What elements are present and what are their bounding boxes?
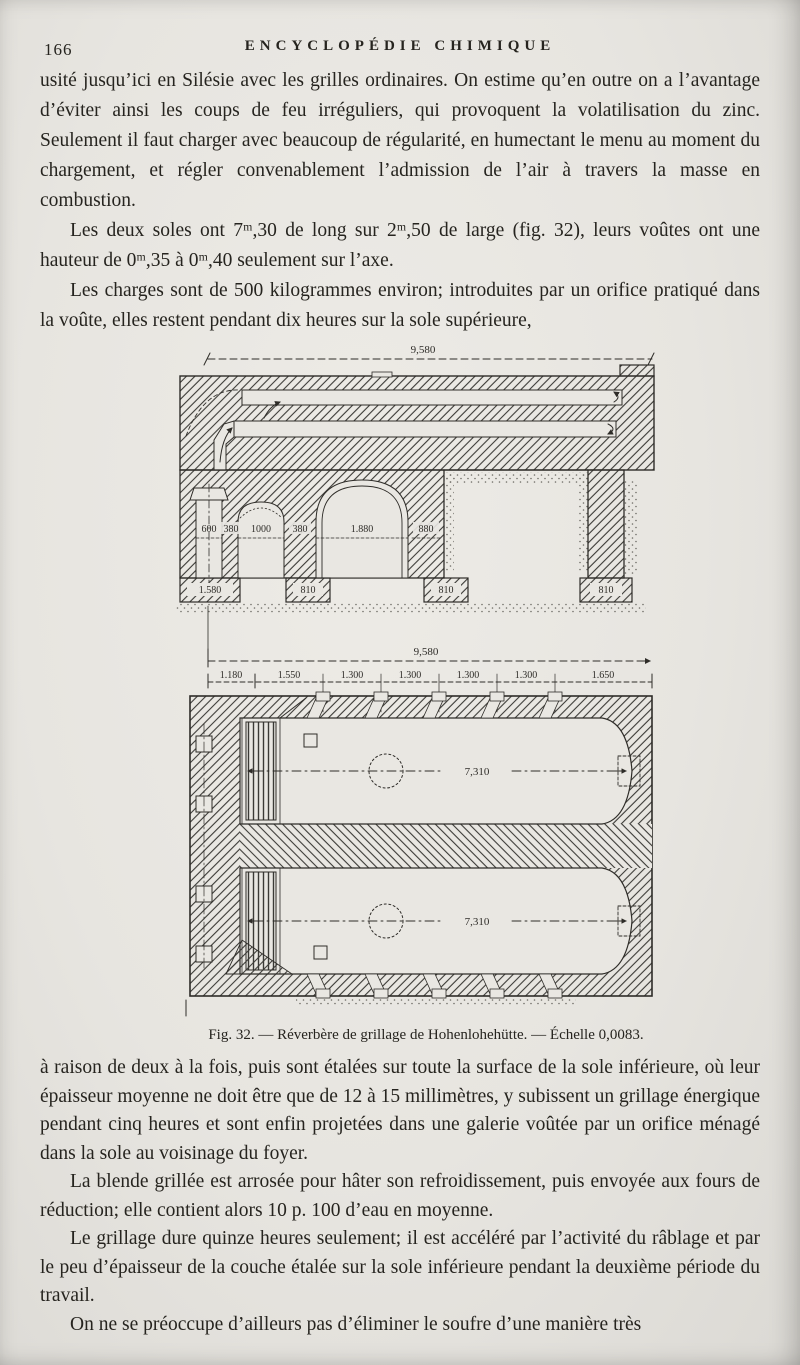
ground-shading — [444, 472, 588, 484]
small-opening — [314, 946, 327, 959]
upper-sole-channel — [242, 390, 622, 405]
paragraph: On ne se préoccupe d’ailleurs pas d’élim… — [40, 1311, 760, 1340]
paragraph: Les charges sont de 500 kilogrammes envi… — [40, 276, 760, 336]
chamber-dim-label: 7,310 — [465, 916, 490, 928]
footing-dim-label: 1.580 — [199, 585, 222, 596]
paragraph: usité jusqu’ici en Silésie avec les gril… — [40, 66, 760, 216]
section-overall-dim-label: 9,580 — [411, 344, 436, 356]
opening-dim-label: 880 — [419, 524, 434, 535]
furnace-drawing: 9,580 — [176, 340, 681, 1020]
opening-dim-label: 1.880 — [351, 524, 374, 535]
segment-dim-label: 1.300 — [341, 670, 364, 681]
segment-dim-label: 1.650 — [592, 670, 615, 681]
middle-wall — [240, 824, 652, 868]
section-view: 9,580 — [176, 344, 654, 658]
segment-dim-label: 1.300 — [399, 670, 422, 681]
paragraph: à raison de deux à la fois, puis sont ét… — [40, 1054, 760, 1168]
page-header: 166 ENCYCLOPÉDIE CHIMIQUE — [0, 0, 800, 66]
running-title: ENCYCLOPÉDIE CHIMIQUE — [0, 38, 800, 55]
small-opening — [304, 734, 317, 747]
paragraph: Les deux soles ont 7ᵐ,30 de long sur 2ᵐ,… — [40, 216, 760, 276]
plan-overall-dim-label: 9,580 — [414, 646, 439, 658]
opening-dim-label: 1000 — [251, 524, 271, 535]
chimney-block — [620, 365, 654, 376]
paragraph: La blende grillée est arrosée pour hâter… — [40, 1168, 760, 1225]
text-before-figure: usité jusqu’ici en Silésie avec les gril… — [40, 66, 760, 336]
figure-32: 9,580 — [176, 340, 681, 1044]
paragraph: Le grillage dure quinze heures seulement… — [40, 1225, 760, 1311]
charging-hole — [372, 372, 392, 377]
opening-dim-label: 380 — [293, 524, 308, 535]
support-pillar — [588, 470, 624, 578]
segment-dim-label: 1.300 — [515, 670, 538, 681]
footing-dim-label: 810 — [599, 585, 614, 596]
segment-dim-label: 1.550 — [278, 670, 301, 681]
lower-sole-channel — [234, 421, 616, 437]
footings: 1.580 810 810 810 — [176, 578, 646, 613]
chamber-dim-label: 7,310 — [465, 766, 490, 778]
footing-dim-label: 810 — [301, 585, 316, 596]
segment-dim-label: 1.180 — [220, 670, 243, 681]
plan-view: 9,580 1.180 1.550 1.300 1.300 1.300 1.30… — [186, 646, 652, 1016]
opening-dim-label: 380 — [224, 524, 239, 535]
text-after-figure: à raison de deux à la fois, puis sont ét… — [40, 1054, 760, 1339]
opening-dim-label: 600 — [202, 524, 217, 535]
figure-caption: Fig. 32. — Réverbère de grillage de Hohe… — [116, 1027, 736, 1044]
footing-dim-label: 810 — [439, 585, 454, 596]
segment-dim-label: 1.300 — [457, 670, 480, 681]
